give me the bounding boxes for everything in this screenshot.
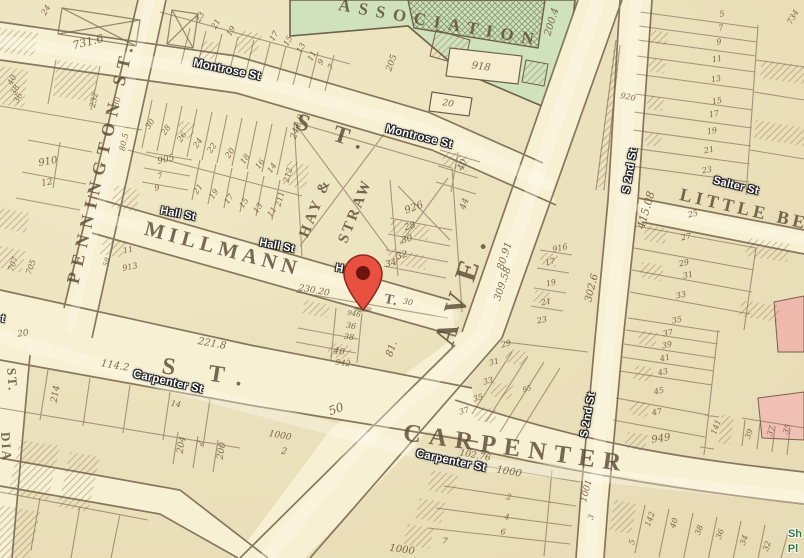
map-pin-body (344, 255, 382, 310)
map-pin[interactable] (343, 254, 383, 312)
map-canvas[interactable]: 731.6244038362323080.5910127077059057911… (0, 0, 804, 558)
map-pin-hole (356, 266, 370, 280)
historical-map-artwork (0, 0, 804, 558)
